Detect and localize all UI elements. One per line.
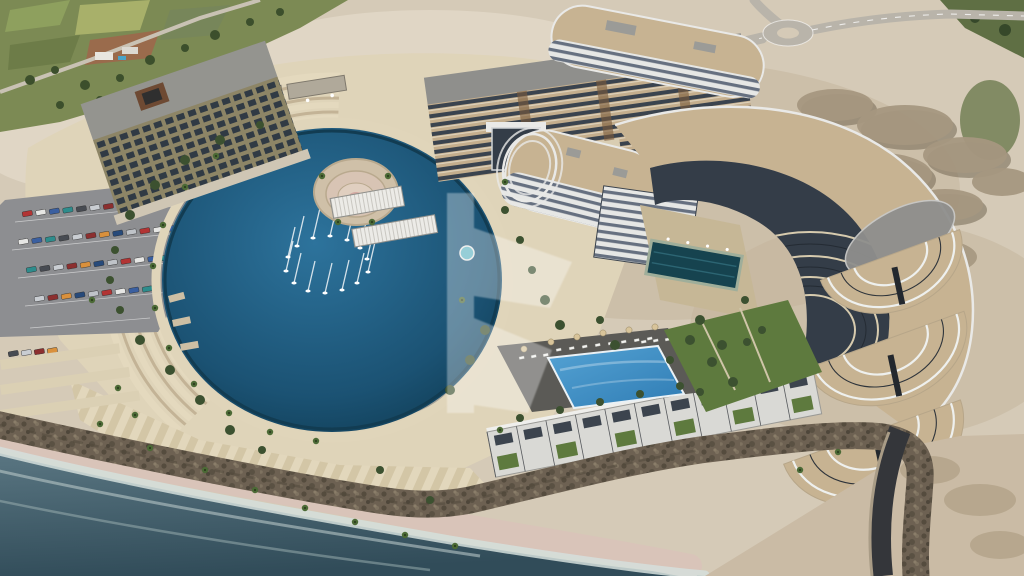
palm-tree bbox=[452, 543, 458, 549]
tree bbox=[610, 340, 620, 350]
pool-umbrella bbox=[574, 334, 580, 340]
roundabout bbox=[763, 20, 813, 46]
tree bbox=[707, 357, 717, 367]
palm-tree bbox=[147, 445, 153, 451]
palm-tree bbox=[502, 179, 508, 185]
tree bbox=[516, 236, 524, 244]
palm-tree bbox=[835, 449, 841, 455]
tree bbox=[741, 296, 749, 304]
tree bbox=[555, 320, 565, 330]
tree bbox=[116, 306, 124, 314]
tree bbox=[676, 382, 684, 390]
tree bbox=[111, 246, 119, 254]
tree bbox=[516, 414, 524, 422]
palm-tree bbox=[267, 429, 273, 435]
palm-tree bbox=[369, 219, 375, 225]
palm-tree bbox=[132, 412, 138, 418]
palm-tree bbox=[182, 184, 188, 190]
tree bbox=[165, 365, 175, 375]
aerial-resort-render bbox=[0, 0, 1024, 576]
tree bbox=[685, 335, 695, 345]
palm-tree bbox=[385, 173, 391, 179]
tree bbox=[636, 390, 644, 398]
palm-tree bbox=[226, 410, 232, 416]
tree bbox=[596, 398, 604, 406]
architectural-render-stage bbox=[0, 0, 1024, 576]
palm-tree bbox=[319, 173, 325, 179]
scrub-tree bbox=[999, 24, 1011, 36]
palm-tree bbox=[115, 385, 121, 391]
palm-tree bbox=[89, 297, 95, 303]
farm-pool bbox=[118, 56, 126, 60]
pool-umbrella bbox=[652, 324, 658, 330]
tree bbox=[106, 276, 114, 284]
palm-tree bbox=[402, 532, 408, 538]
tree bbox=[135, 335, 145, 345]
tree bbox=[717, 340, 727, 350]
tree bbox=[758, 326, 766, 334]
tree bbox=[743, 338, 751, 346]
tree bbox=[695, 315, 705, 325]
palm-tree bbox=[497, 427, 503, 433]
tree bbox=[180, 155, 190, 165]
palm-tree bbox=[191, 381, 197, 387]
palm-tree bbox=[302, 505, 308, 511]
palm-tree bbox=[213, 153, 219, 159]
tree bbox=[696, 388, 704, 396]
tree bbox=[150, 180, 160, 190]
palm-tree bbox=[160, 222, 166, 228]
tree bbox=[376, 466, 384, 474]
tree bbox=[666, 356, 674, 364]
tree bbox=[596, 316, 604, 324]
farm-building bbox=[95, 52, 113, 60]
watermark-bar bbox=[447, 193, 474, 413]
pool-umbrella bbox=[600, 330, 606, 336]
palm-tree bbox=[797, 467, 803, 473]
field-patch bbox=[75, 0, 150, 35]
palm-tree bbox=[313, 438, 319, 444]
palm-tree bbox=[252, 487, 258, 493]
palm-tree bbox=[202, 467, 208, 473]
pool-umbrella bbox=[548, 339, 554, 345]
tree bbox=[728, 377, 738, 387]
palm-tree bbox=[152, 305, 158, 311]
tree bbox=[125, 210, 135, 220]
palm-tree bbox=[97, 421, 103, 427]
tree bbox=[556, 406, 564, 414]
palm-tree bbox=[335, 219, 341, 225]
pool-umbrella bbox=[626, 327, 632, 333]
tree bbox=[501, 206, 509, 214]
tree bbox=[195, 395, 205, 405]
tree bbox=[258, 446, 266, 454]
palm-tree bbox=[150, 263, 156, 269]
tree bbox=[215, 135, 225, 145]
tree bbox=[426, 496, 434, 504]
farm-building bbox=[122, 47, 138, 54]
palm-tree bbox=[166, 345, 172, 351]
palm-tree bbox=[352, 519, 358, 525]
tree bbox=[256, 121, 264, 129]
tree bbox=[225, 425, 235, 435]
